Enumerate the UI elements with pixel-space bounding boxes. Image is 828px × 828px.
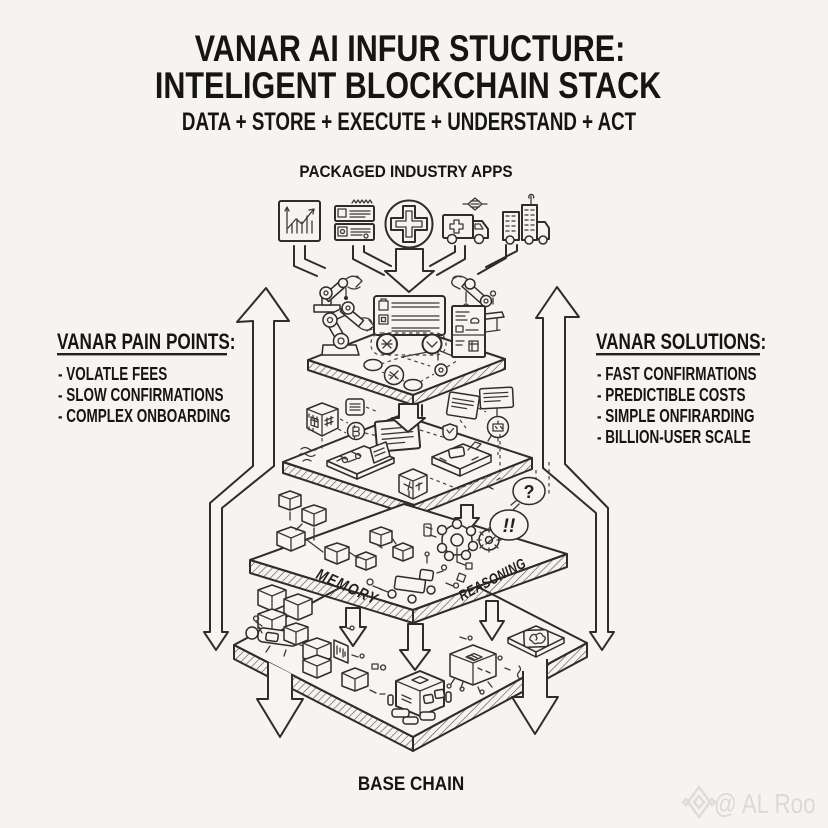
svg-text:- SIMPLE ONFIRARDING: - SIMPLE ONFIRARDING bbox=[597, 406, 754, 427]
svg-text:- VOLATLE FEES: - VOLATLE FEES bbox=[58, 364, 167, 385]
svg-text:- SLOW CONFIRMATIONS: - SLOW CONFIRMATIONS bbox=[58, 385, 224, 406]
svg-text:PACKAGED INDUSTRY APPS: PACKAGED INDUSTRY APPS bbox=[299, 162, 512, 181]
svg-text:@ AL Roo: @ AL Roo bbox=[714, 789, 816, 820]
svg-text:- BILLION-USER SCALE: - BILLION-USER SCALE bbox=[597, 427, 751, 448]
svg-text:- PREDICTIBLE COSTS: - PREDICTIBLE COSTS bbox=[597, 385, 746, 406]
svg-text:- FAST CONFIRMATIONS: - FAST CONFIRMATIONS bbox=[597, 364, 757, 385]
svg-text:BASE CHAIN: BASE CHAIN bbox=[358, 773, 464, 794]
svg-text:!!: !! bbox=[503, 516, 516, 537]
svg-text:DATA + STORE + EXECUTE + UNDER: DATA + STORE + EXECUTE + UNDERSTAND + AC… bbox=[182, 107, 637, 135]
svg-text:- COMPLEX ONBOARDING: - COMPLEX ONBOARDING bbox=[58, 406, 230, 427]
svg-text:VANAR AI INFUR STUCTURE:: VANAR AI INFUR STUCTURE: bbox=[195, 28, 626, 69]
svg-text:?: ? bbox=[524, 482, 535, 502]
svg-text:VANAR PAIN POINTS:: VANAR PAIN POINTS: bbox=[57, 330, 236, 355]
svg-text:INTELIGENT BLOCKCHAIN STACK: INTELIGENT BLOCKCHAIN STACK bbox=[155, 65, 662, 106]
svg-text:VANAR SOLUTIONS:: VANAR SOLUTIONS: bbox=[596, 330, 766, 355]
